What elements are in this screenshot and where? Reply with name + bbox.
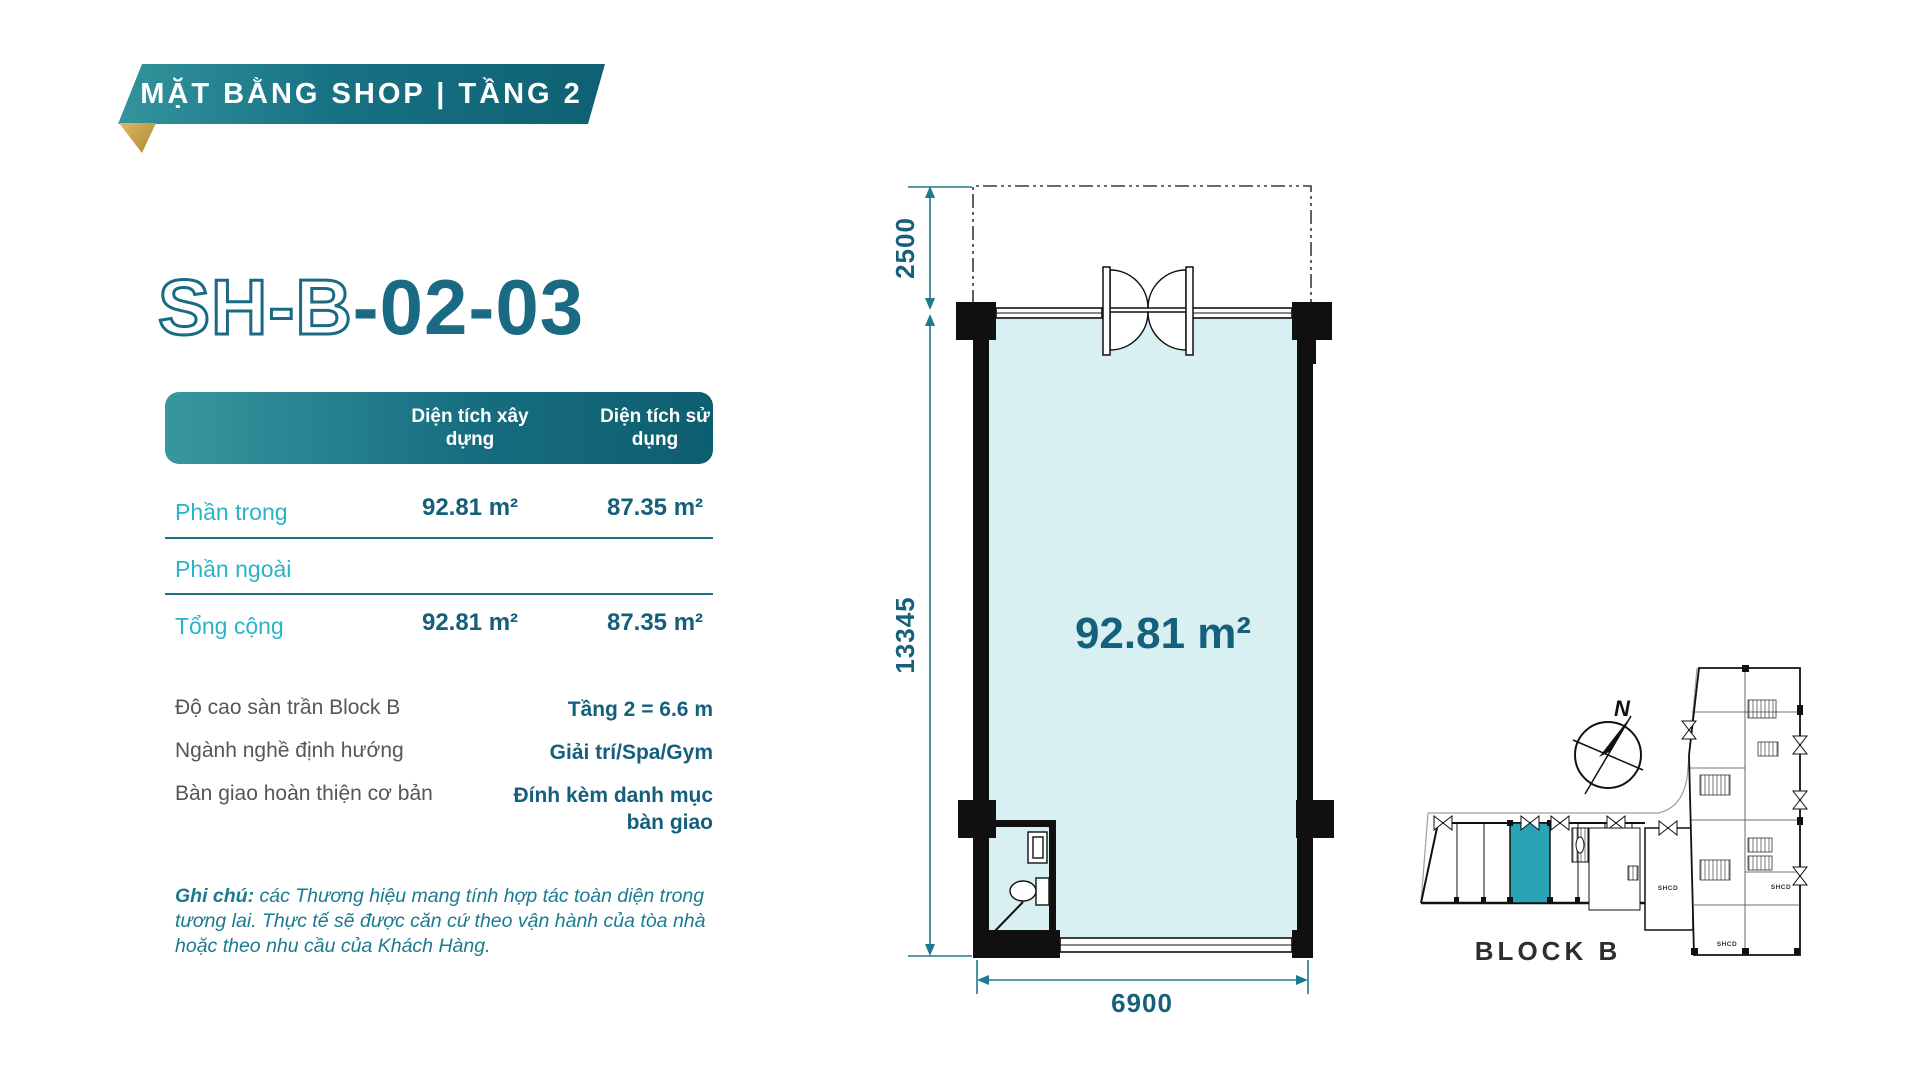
tower-block <box>1689 665 1803 955</box>
page-banner: MẶT BẰNG SHOP | TẦNG 2 <box>118 64 605 124</box>
table-divider <box>165 537 713 539</box>
wall-stub-left <box>976 340 988 364</box>
total-built-value: 92.81 m² <box>395 609 545 637</box>
dim-2500-label: 2500 <box>890 217 920 279</box>
inner-built-value: 92.81 m² <box>395 494 545 522</box>
column-mid-left <box>958 800 996 838</box>
row-label-outer: Phần ngoài <box>175 556 291 583</box>
detail-label-ceiling-height: Độ cao sàn trần Block B <box>175 696 400 720</box>
banner-title: MẶT BẰNG SHOP | TẦNG 2 <box>140 78 583 111</box>
key-site-plan: SHCD <box>1415 650 1825 980</box>
detail-value-handover: Đính kèm danh mục bàn giao <box>483 782 713 836</box>
toilet-sink <box>1028 832 1047 863</box>
wall-stub-right <box>1304 340 1316 364</box>
dim-13345-label: 13345 <box>890 596 920 673</box>
unit-code-solid-part: -02-03 <box>353 263 584 351</box>
inner-usable-value: 87.35 m² <box>580 494 730 522</box>
column-top-right <box>1292 302 1332 340</box>
mid-units <box>1572 828 1693 930</box>
detail-value-ceiling-height: Tầng 2 = 6.6 m <box>483 696 713 723</box>
dim-6900-label: 6900 <box>1111 988 1173 1018</box>
unit-floor-plan: 92.81 m² 2500 13345 6900 <box>860 148 1380 1028</box>
highlighted-unit <box>1510 823 1550 903</box>
col-header-built-area: Diện tích xây dựng <box>390 392 550 464</box>
rear-glass <box>1060 938 1292 952</box>
banner-fold-ornament <box>119 123 156 153</box>
detail-label-handover: Bàn giao hoàn thiện cơ bản <box>175 782 433 806</box>
column-mid-right <box>1296 800 1334 838</box>
area-table-header: Diện tích xây dựng Diện tích sử dụng <box>165 392 713 464</box>
floorplan-sheet: MẶT BẰNG SHOP | TẦNG 2 SH-B-02-03 Diện t… <box>0 0 1920 1080</box>
wall-bottom-left <box>973 930 1060 958</box>
col-header-usable-area: Diện tích sử dụng <box>575 392 735 464</box>
shcd-label: SHCD <box>1658 885 1678 892</box>
wall-right <box>1297 336 1313 945</box>
wall-bottom-right <box>1292 930 1313 958</box>
total-usable-value: 87.35 m² <box>580 609 730 637</box>
detail-value-business-type: Giải trí/Spa/Gym <box>483 739 713 766</box>
shcd-label: SHCD <box>1717 941 1737 948</box>
area-label: 92.81 m² <box>1075 609 1251 658</box>
column-top-left <box>956 302 996 340</box>
wall-left <box>973 336 989 945</box>
unit-code-outline-part: SH-B <box>158 263 353 351</box>
footnote-label: Ghi chú: <box>175 885 254 907</box>
footnote: Ghi chú: các Thương hiệu mang tính hợp t… <box>175 884 720 959</box>
table-divider <box>165 593 713 595</box>
north-label: N <box>1614 696 1631 721</box>
row-label-total: Tổng cộng <box>175 613 284 640</box>
row-label-inner: Phần trong <box>175 499 288 526</box>
detail-label-business-type: Ngành nghề định hướng <box>175 739 404 763</box>
unit-code-title: SH-B-02-03 <box>158 262 584 353</box>
block-b-label: BLOCK B <box>1475 936 1621 966</box>
footnote-text: các Thương hiệu mang tính hợp tác toàn d… <box>175 885 705 957</box>
shcd-label: SHCD <box>1771 884 1791 891</box>
compass <box>1573 716 1643 794</box>
